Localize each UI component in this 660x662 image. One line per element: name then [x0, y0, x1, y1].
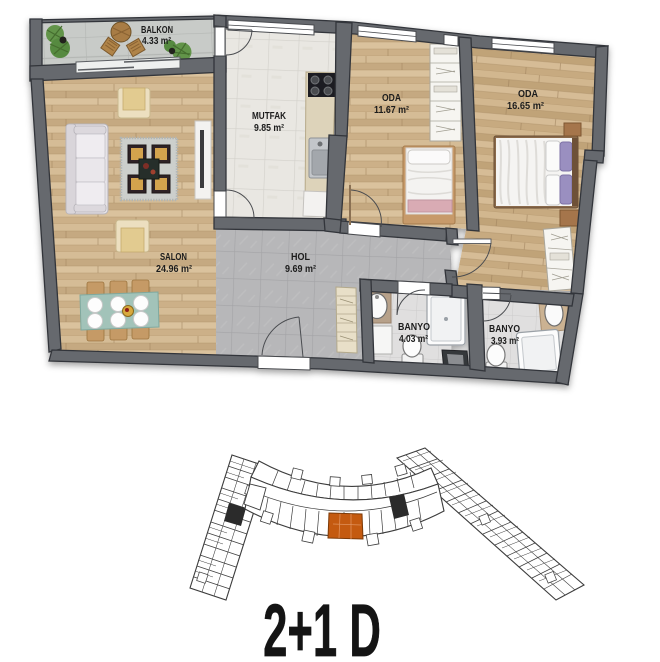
svg-text:MUTFAK: MUTFAK [252, 111, 287, 122]
svg-text:HOL: HOL [291, 252, 310, 263]
svg-text:ODA: ODA [382, 93, 401, 104]
svg-text:4.03 m²: 4.03 m² [399, 334, 429, 345]
svg-text:BALKON: BALKON [141, 25, 173, 36]
svg-text:3.93 m²: 3.93 m² [491, 336, 520, 347]
svg-text:SALON: SALON [160, 252, 187, 263]
svg-text:9.85 m²: 9.85 m² [254, 123, 285, 134]
svg-text:11.67 m²: 11.67 m² [374, 105, 410, 116]
svg-text:BANYO: BANYO [398, 322, 430, 333]
svg-text:ODA: ODA [518, 89, 538, 100]
svg-text:4.33 m²: 4.33 m² [142, 36, 172, 47]
svg-text:16.65 m²: 16.65 m² [507, 101, 545, 112]
svg-text:2+1 D: 2+1 D [263, 589, 381, 662]
svg-text:9.69 m²: 9.69 m² [285, 264, 317, 275]
svg-text:BANYO: BANYO [489, 324, 520, 335]
svg-text:24.96 m²: 24.96 m² [156, 264, 193, 275]
